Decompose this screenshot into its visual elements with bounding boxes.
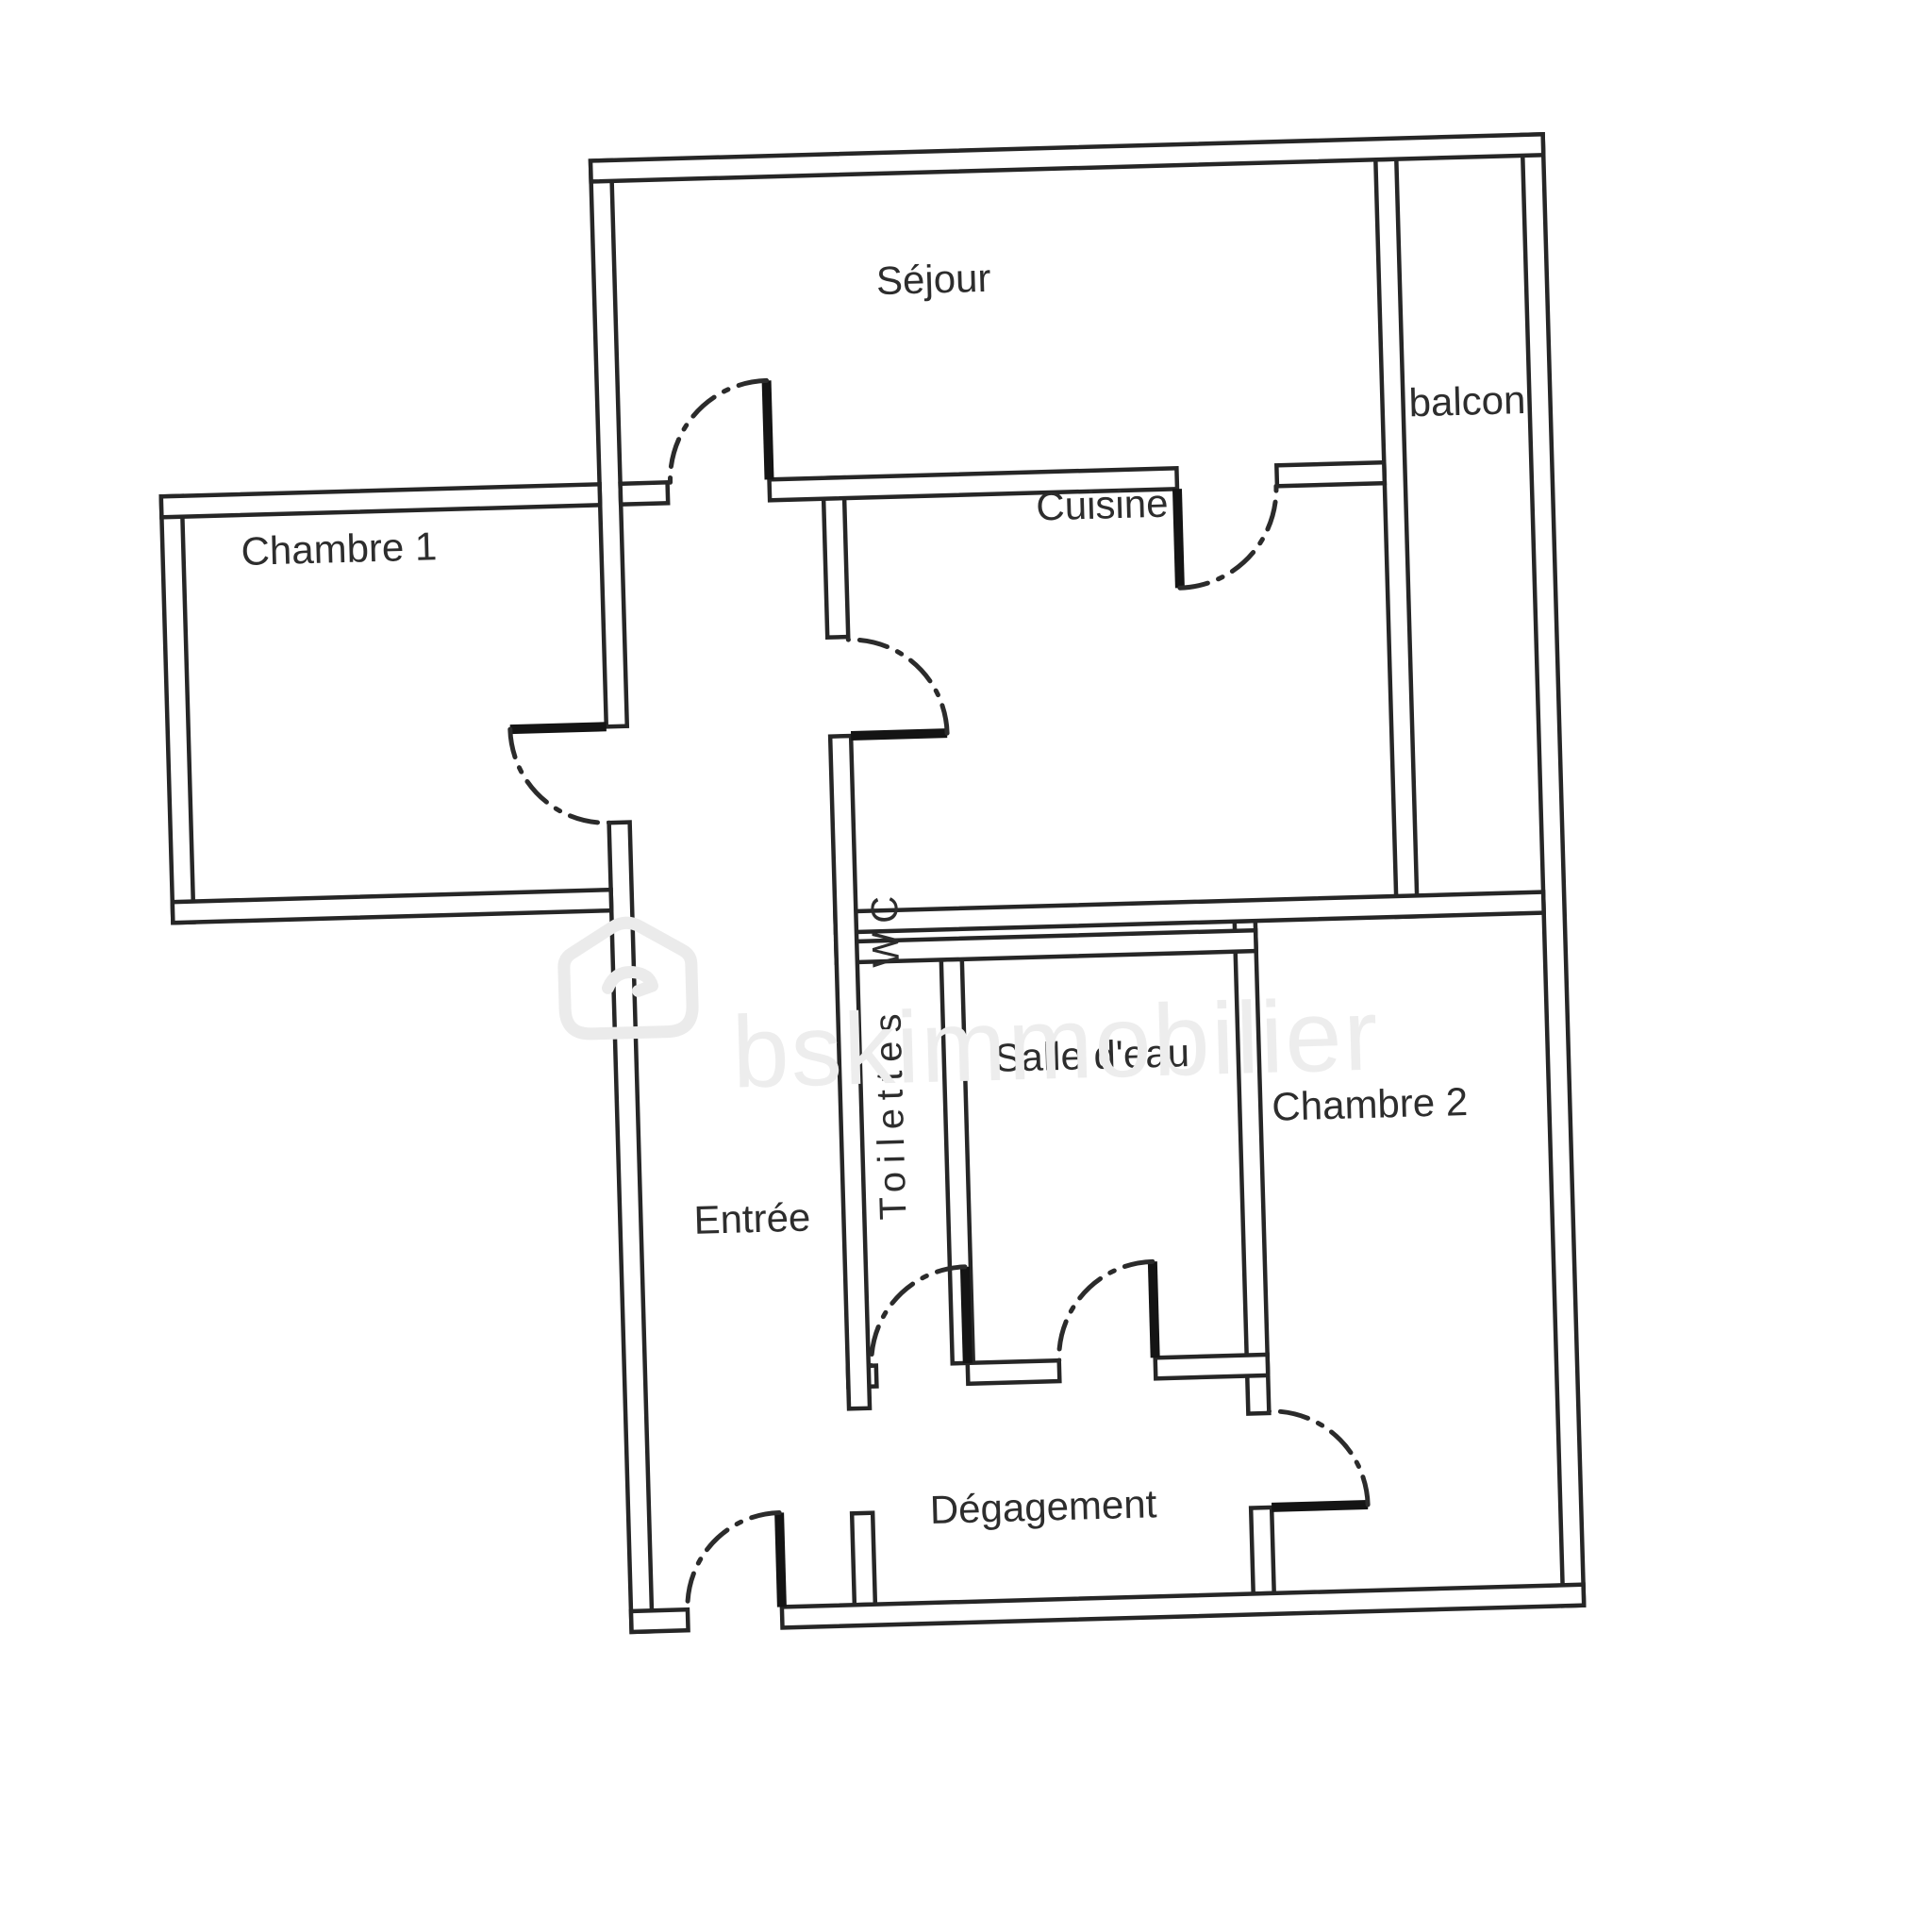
wall-segment — [852, 1513, 875, 1606]
door-swing-arc — [1269, 1408, 1368, 1507]
room-label-entree: Entrée — [693, 1194, 811, 1241]
wall-segment — [590, 160, 627, 726]
wall-segment — [173, 890, 611, 923]
room-label-chambre-1: Chambre 1 — [241, 524, 438, 574]
room-label-degagement: Dégagement — [929, 1481, 1157, 1532]
watermark: bskimmobilier — [563, 902, 1381, 1113]
wall-segment — [835, 892, 1543, 933]
floor-plan: Séjour balcon Chambre 1 Cuisine Entrée T… — [0, 0, 1912, 1932]
door-salle-deau — [1056, 1261, 1156, 1360]
door-leaf — [1272, 1505, 1368, 1507]
door-sejour-cuisine — [1177, 486, 1279, 588]
wall-segment — [590, 134, 1543, 181]
wall-segment — [1375, 159, 1417, 917]
door-chambre-2 — [1269, 1408, 1368, 1507]
door-swing-arc — [510, 726, 609, 825]
wall-segment — [161, 484, 600, 517]
door-leaf — [767, 380, 770, 479]
wall-segment — [161, 496, 194, 923]
door-swing-arc — [685, 1512, 782, 1609]
door-swing-arc — [1177, 486, 1279, 588]
door-swing-arc — [1056, 1261, 1156, 1360]
wall-segment — [631, 1609, 689, 1632]
floor-plan-page: Séjour balcon Chambre 1 Cuisine Entrée T… — [0, 0, 1912, 1932]
door-leaf — [510, 726, 607, 729]
room-label-cuisine: Cuisine — [1036, 481, 1169, 529]
door-sejour-entree — [668, 380, 770, 482]
wall-segment — [609, 823, 653, 1632]
plan-rotation-group: Séjour balcon Chambre 1 Cuisine Entrée T… — [152, 134, 1584, 1644]
door-swing-arc — [668, 380, 770, 482]
wall-segment — [1251, 1507, 1274, 1594]
wall-segment — [1522, 134, 1585, 1606]
door-entree-cuisine — [848, 637, 947, 736]
door-swing-arc — [848, 637, 947, 736]
watermark-brand-text: bskimmobilier — [731, 977, 1381, 1109]
door-leaf — [965, 1267, 968, 1363]
wall-segment — [968, 1360, 1060, 1384]
wall-segment — [621, 482, 669, 504]
wall-segment — [782, 1585, 1584, 1628]
room-label-balcon: balcon — [1408, 377, 1526, 425]
room-label-sejour: Séjour — [875, 256, 991, 303]
wall-segment — [1156, 1355, 1269, 1378]
wall-segment — [1276, 462, 1385, 486]
wall-segment — [823, 477, 849, 638]
door-leaf — [1177, 489, 1180, 588]
door-leaf — [779, 1512, 782, 1607]
door-leaf — [1153, 1261, 1156, 1357]
door-entry — [685, 1512, 782, 1609]
door-leaf — [851, 733, 947, 736]
door-chambre-1 — [510, 726, 609, 825]
